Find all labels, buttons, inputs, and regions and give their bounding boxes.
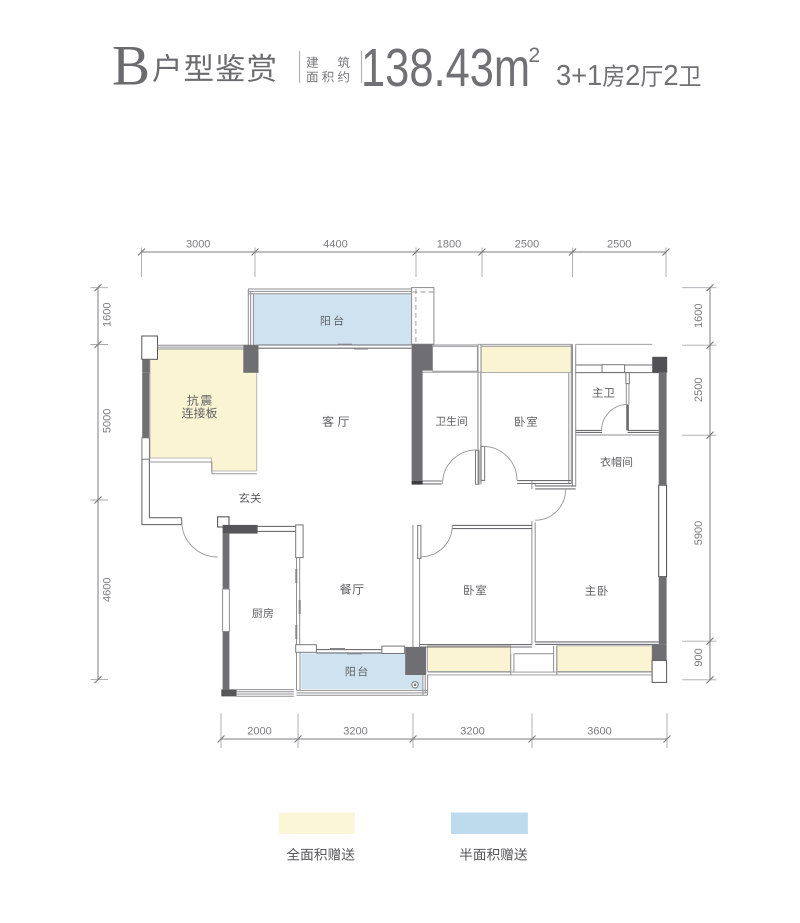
svg-text:4600: 4600 — [102, 578, 114, 602]
svg-text:2: 2 — [529, 44, 541, 67]
svg-text:1600: 1600 — [693, 304, 705, 328]
svg-text:4400: 4400 — [323, 239, 347, 251]
svg-text:B: B — [112, 35, 150, 98]
svg-text:3+1: 3+1 — [556, 59, 602, 91]
svg-text:1800: 1800 — [437, 239, 461, 251]
svg-text:5900: 5900 — [693, 521, 705, 545]
svg-text:2500: 2500 — [693, 378, 705, 402]
svg-text:3000: 3000 — [186, 239, 210, 251]
svg-text:3200: 3200 — [460, 726, 484, 738]
svg-text:2500: 2500 — [607, 239, 631, 251]
svg-text:2500: 2500 — [515, 239, 539, 251]
svg-text:2: 2 — [663, 59, 678, 91]
svg-text:2000: 2000 — [247, 726, 271, 738]
svg-text:5000: 5000 — [102, 409, 114, 433]
svg-text:3600: 3600 — [587, 726, 611, 738]
svg-text:1600: 1600 — [102, 303, 114, 327]
svg-text:900: 900 — [693, 648, 705, 666]
svg-text:2: 2 — [625, 59, 640, 91]
svg-text:138.43m: 138.43m — [361, 39, 530, 98]
svg-text:3200: 3200 — [343, 726, 367, 738]
